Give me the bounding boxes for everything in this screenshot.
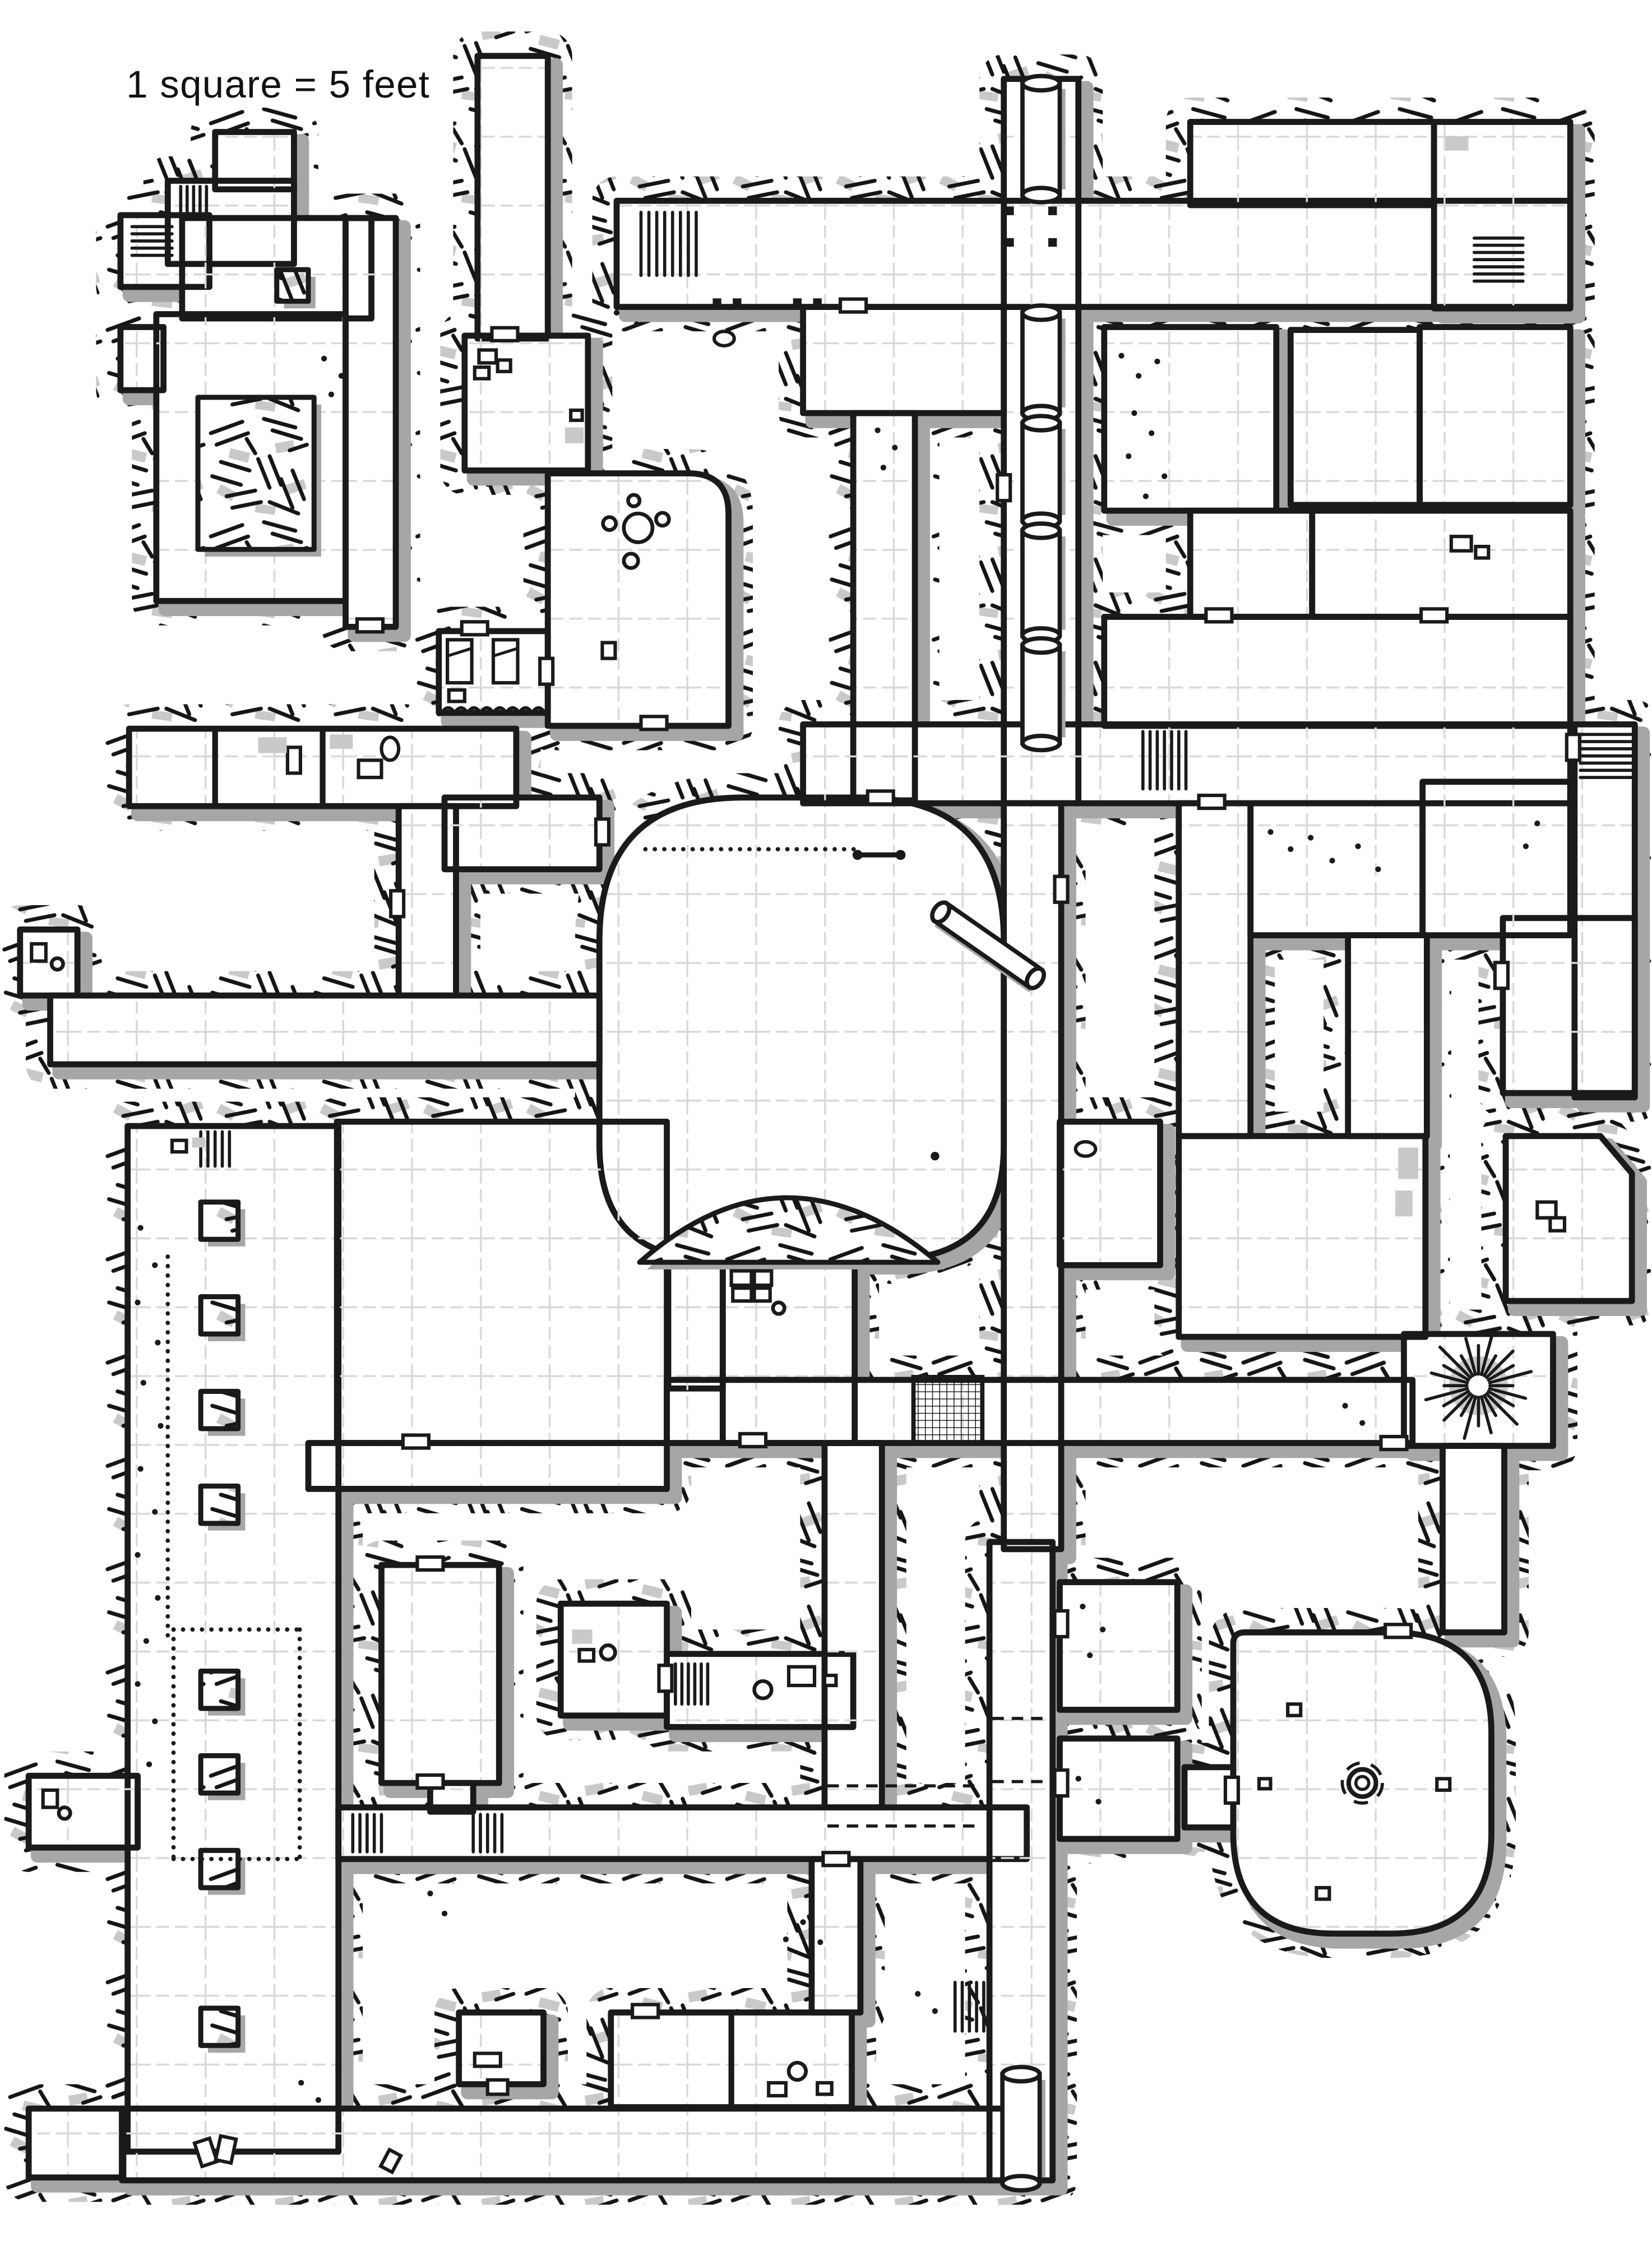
door-marker — [632, 2004, 658, 2017]
door-marker — [1055, 877, 1068, 902]
furniture-item — [216, 2136, 237, 2163]
rubble-dot — [328, 392, 334, 397]
east-big-room-walls — [1179, 1136, 1426, 1337]
rubble-dot — [817, 1939, 823, 1945]
east-room-c-walls — [1059, 1122, 1160, 1265]
nw-corridor-south-walls — [346, 218, 396, 627]
furniture-item — [488, 2080, 508, 2095]
rubble-dot — [152, 1509, 158, 1514]
door-marker — [641, 716, 667, 729]
rubble-dot — [1375, 867, 1381, 872]
door-marker — [403, 1435, 429, 1448]
oval-furniture — [714, 331, 734, 346]
door-marker — [1225, 1777, 1238, 1803]
rubble-dot — [1131, 410, 1137, 416]
rubble-dot — [1126, 453, 1131, 459]
scale-label: 1 square = 5 feet — [126, 62, 430, 106]
nw-alcove-walls — [121, 327, 164, 390]
round-furniture — [601, 1645, 616, 1660]
furniture-item — [732, 1271, 752, 1285]
furniture-item — [789, 1667, 815, 1685]
east-link-walls — [1348, 935, 1427, 1136]
pillared-hall-walls — [128, 1126, 339, 2152]
ne-upper-room-walls — [1190, 122, 1434, 205]
pipe-shaft — [1022, 416, 1066, 528]
pipe-body — [1002, 2074, 1040, 2183]
oval-furniture — [1076, 1142, 1096, 1156]
stairs-marker — [1580, 734, 1632, 777]
pipe-body — [1022, 83, 1060, 195]
door-marker — [997, 475, 1010, 501]
east-room-a-walls — [1251, 803, 1423, 935]
pillar — [277, 270, 308, 301]
rubble-dot — [1076, 1776, 1081, 1781]
south-corridor-h-walls — [667, 1380, 1413, 1443]
rubble-dot — [1100, 1627, 1105, 1632]
door-marker — [417, 1557, 443, 1570]
furniture-item — [1437, 1778, 1450, 1790]
furniture-item — [1451, 536, 1471, 551]
west-corridor-walls — [50, 995, 600, 1064]
rubble-dot — [881, 465, 886, 470]
furniture-item — [449, 690, 465, 701]
round-furniture — [656, 513, 669, 526]
rubble-dot — [155, 1340, 160, 1345]
pipe-body — [1022, 423, 1060, 521]
pillar — [201, 1755, 238, 1793]
lever-knob — [896, 850, 906, 860]
rubble-dot — [892, 444, 897, 450]
door-marker — [1055, 1770, 1068, 1796]
door-marker — [462, 622, 488, 634]
door-block-marker — [1048, 238, 1057, 247]
pillar — [201, 1202, 238, 1240]
rubble-dot — [1308, 835, 1313, 840]
ne-room-b-walls — [1290, 330, 1419, 505]
west-stub-walls — [20, 929, 77, 995]
sw-room-a-walls — [381, 1565, 499, 1783]
rubble-dot — [152, 1262, 158, 1268]
furniture-item — [602, 643, 615, 659]
pipe-rim — [1022, 188, 1060, 202]
rubble-dot — [339, 373, 344, 378]
se-room-b-walls — [1059, 1739, 1177, 1839]
pillar — [201, 1296, 238, 1334]
rubble-dot — [135, 1300, 140, 1305]
door-marker — [1206, 609, 1232, 622]
furniture-item — [31, 944, 46, 961]
door-marker — [823, 1852, 849, 1865]
door-marker — [357, 619, 383, 632]
table-room-walls — [548, 474, 728, 726]
rubble-dot — [614, 310, 619, 316]
rubble-dot — [135, 1681, 140, 1687]
rubble-dot — [1342, 1403, 1348, 1409]
pipe-rim — [1002, 2176, 1040, 2190]
rubble-dot — [138, 1466, 144, 1471]
top-hall-walls — [617, 201, 1570, 307]
furniture-item — [498, 360, 511, 371]
rubble-dot — [1154, 359, 1160, 364]
rubble-dot — [141, 1380, 146, 1386]
rubble-dot — [874, 428, 880, 433]
pipe-rim — [1022, 305, 1060, 320]
door-block-marker — [733, 298, 741, 307]
door-block-marker — [1005, 207, 1014, 215]
door-block-marker — [1048, 207, 1057, 215]
rubble-dot — [1087, 1652, 1093, 1658]
rubble-dot — [1517, 800, 1523, 806]
pipe-rim — [1022, 736, 1060, 751]
rubble-dot — [1355, 844, 1361, 849]
round-furniture — [52, 958, 63, 970]
ne-room-c-walls — [1420, 327, 1571, 504]
door-marker — [596, 819, 609, 845]
pipe-rim — [1022, 76, 1060, 91]
door-marker — [840, 299, 866, 312]
door-marker — [391, 891, 404, 916]
furniture-item — [43, 1790, 58, 1808]
ne-room-a-walls — [1104, 327, 1276, 511]
rubble-dot — [1523, 844, 1529, 849]
rubble-dot — [144, 1638, 149, 1644]
oval-furniture — [381, 737, 399, 760]
rubble-dot — [152, 1718, 158, 1724]
furniture-item — [359, 760, 382, 777]
rubble-dot — [1534, 821, 1540, 826]
rubble-dot — [1149, 430, 1154, 436]
west-stub-b-walls — [29, 1776, 137, 1847]
door-block-marker — [1005, 238, 1014, 247]
rubble-dot — [146, 1762, 152, 1767]
rubble-dot — [783, 1937, 789, 1942]
rubble-dot — [1359, 1420, 1365, 1426]
east-mid-corridor-walls — [1179, 803, 1251, 1136]
rubble-dot — [298, 2080, 304, 2086]
sw-corner-stub-walls — [29, 2109, 123, 2178]
pillar — [201, 1850, 238, 1888]
door-marker — [1381, 1437, 1407, 1449]
door-marker — [288, 747, 300, 773]
round-furniture — [624, 554, 638, 568]
stone-block — [258, 737, 286, 753]
door-marker — [417, 1775, 443, 1788]
furniture-item — [493, 640, 517, 683]
rubble-dot — [800, 1919, 806, 1925]
furniture-item — [733, 1288, 751, 1301]
door-marker — [475, 2053, 501, 2066]
bottom-link-walls — [812, 1859, 860, 2013]
furniture-item — [447, 640, 471, 683]
door-marker — [740, 1434, 766, 1447]
door-marker — [1385, 1624, 1411, 1637]
door-marker — [540, 659, 553, 684]
rubble-dot — [634, 321, 640, 327]
bottom-room-a-walls — [459, 2013, 544, 2084]
dungeon-map: 1 square = 5 feet — [0, 0, 1652, 2242]
roundhall-west-link-walls — [445, 798, 599, 869]
pipe-body — [1022, 313, 1060, 413]
door-block-marker — [813, 298, 821, 307]
rubble-dot — [138, 1225, 144, 1231]
se-corridor-walls — [1443, 1446, 1505, 1633]
round-furniture — [624, 513, 653, 542]
furniture-item — [769, 2083, 786, 2096]
east-edge-room-walls — [1503, 918, 1635, 1093]
rubble-dot — [321, 356, 327, 362]
round-furniture — [789, 2063, 806, 2080]
furniture-item — [479, 350, 496, 363]
furniture-item — [1288, 1704, 1301, 1715]
rubble-dot — [427, 1891, 433, 1896]
stone-block — [1446, 136, 1469, 151]
sw-big-room-walls — [337, 1122, 667, 1443]
pipe-shaft — [1022, 305, 1066, 420]
east-room-b-walls — [1423, 782, 1570, 935]
door-marker — [659, 1665, 672, 1691]
rubble-dot — [135, 1552, 140, 1558]
door-marker — [492, 328, 517, 341]
door-marker — [1495, 962, 1508, 988]
furniture-item — [1550, 1218, 1565, 1231]
pillar — [201, 1671, 238, 1708]
round-furniture — [773, 1303, 784, 1314]
pipe-shaft — [1022, 638, 1066, 751]
pipe-body — [1022, 531, 1060, 636]
pillar — [201, 1391, 238, 1429]
stairs-marker — [1474, 238, 1523, 281]
roundhall-south-corridor-walls — [668, 1259, 723, 1388]
pipe-body — [1022, 646, 1060, 743]
rubble-dot — [1162, 474, 1167, 479]
furniture-item — [755, 1288, 770, 1301]
furniture-item — [1259, 1778, 1270, 1789]
door-marker — [1421, 609, 1447, 622]
rubble-dot — [155, 1595, 160, 1601]
stone-block — [1398, 1147, 1418, 1179]
rubble-dot — [158, 1423, 163, 1429]
furniture-item — [1537, 1202, 1556, 1218]
furniture-item — [579, 1650, 594, 1661]
door-block-marker — [793, 298, 802, 307]
pipe-rim — [1002, 2067, 1040, 2082]
rubble-dot — [1143, 493, 1149, 499]
door-marker — [1055, 1611, 1068, 1637]
stone-block — [330, 734, 353, 749]
dungeon-map-page: 1 square = 5 feet — [0, 0, 1652, 2242]
stone-block — [565, 428, 584, 443]
rubble-dot — [1080, 1604, 1085, 1609]
rubble-dot — [915, 1991, 920, 1997]
grate-floor — [914, 1377, 983, 1443]
lever-knob — [853, 850, 863, 860]
rubble-dot — [1118, 353, 1124, 359]
stone-block — [192, 1137, 205, 1147]
ne-room-d-walls — [1190, 511, 1312, 617]
rubble-dot — [1288, 846, 1293, 852]
stairs-marker — [1143, 731, 1186, 789]
pipe-shaft — [1022, 524, 1066, 642]
stone-block — [1395, 1191, 1413, 1216]
center-corridor-walls — [825, 1443, 882, 1808]
sw-corridor-2-walls — [339, 1808, 1027, 1859]
stone-block — [572, 1629, 593, 1644]
door-marker — [868, 791, 894, 804]
ne-room-e-walls — [1312, 511, 1570, 617]
round-furniture — [628, 495, 639, 506]
door-block-marker — [712, 298, 721, 307]
rubble-dot — [442, 1911, 447, 1916]
rubble-dot — [1267, 829, 1273, 835]
furniture-item — [755, 1271, 772, 1285]
pipe-shaft — [1002, 2067, 1045, 2190]
furniture-item — [172, 1141, 187, 1152]
rubble-dot — [931, 1152, 939, 1160]
furniture-item — [817, 2083, 832, 2094]
furniture-item — [825, 1675, 836, 1685]
east-poly-room-walls — [1506, 1136, 1632, 1301]
pipe-rim — [1022, 638, 1060, 653]
hall-south-room-walls — [803, 307, 1004, 413]
round-furniture — [59, 1808, 70, 1819]
round-furniture — [603, 517, 616, 530]
rubble-dot — [1329, 858, 1335, 863]
pillar — [201, 2008, 238, 2046]
rubble-dot — [1095, 1799, 1101, 1804]
sw-corridor-walls — [308, 1443, 667, 1489]
furniture-item — [475, 367, 489, 378]
rubble-dot — [1136, 373, 1141, 378]
well-rim — [1349, 1769, 1376, 1797]
bottom-corridor-walls — [122, 2109, 1011, 2180]
furniture-item — [1475, 546, 1488, 558]
rock-island — [198, 397, 314, 549]
furniture-item — [1316, 1888, 1329, 1899]
door-marker — [1199, 795, 1225, 808]
north-corridor-walls — [478, 56, 548, 339]
se-room-a-walls — [1059, 1582, 1177, 1710]
round-furniture — [755, 1681, 772, 1698]
pipe-rim — [1022, 524, 1060, 538]
ne-corridor-walls — [1104, 617, 1570, 725]
pillar — [201, 1486, 238, 1523]
door-marker — [1567, 734, 1580, 760]
sw-room-b-walls — [561, 1604, 667, 1716]
rubble-dot — [932, 2008, 938, 2014]
pipe-rim — [1022, 416, 1060, 430]
furniture-item — [571, 410, 582, 420]
pipe-shaft — [1022, 76, 1066, 202]
rubble-dot — [316, 2097, 321, 2103]
